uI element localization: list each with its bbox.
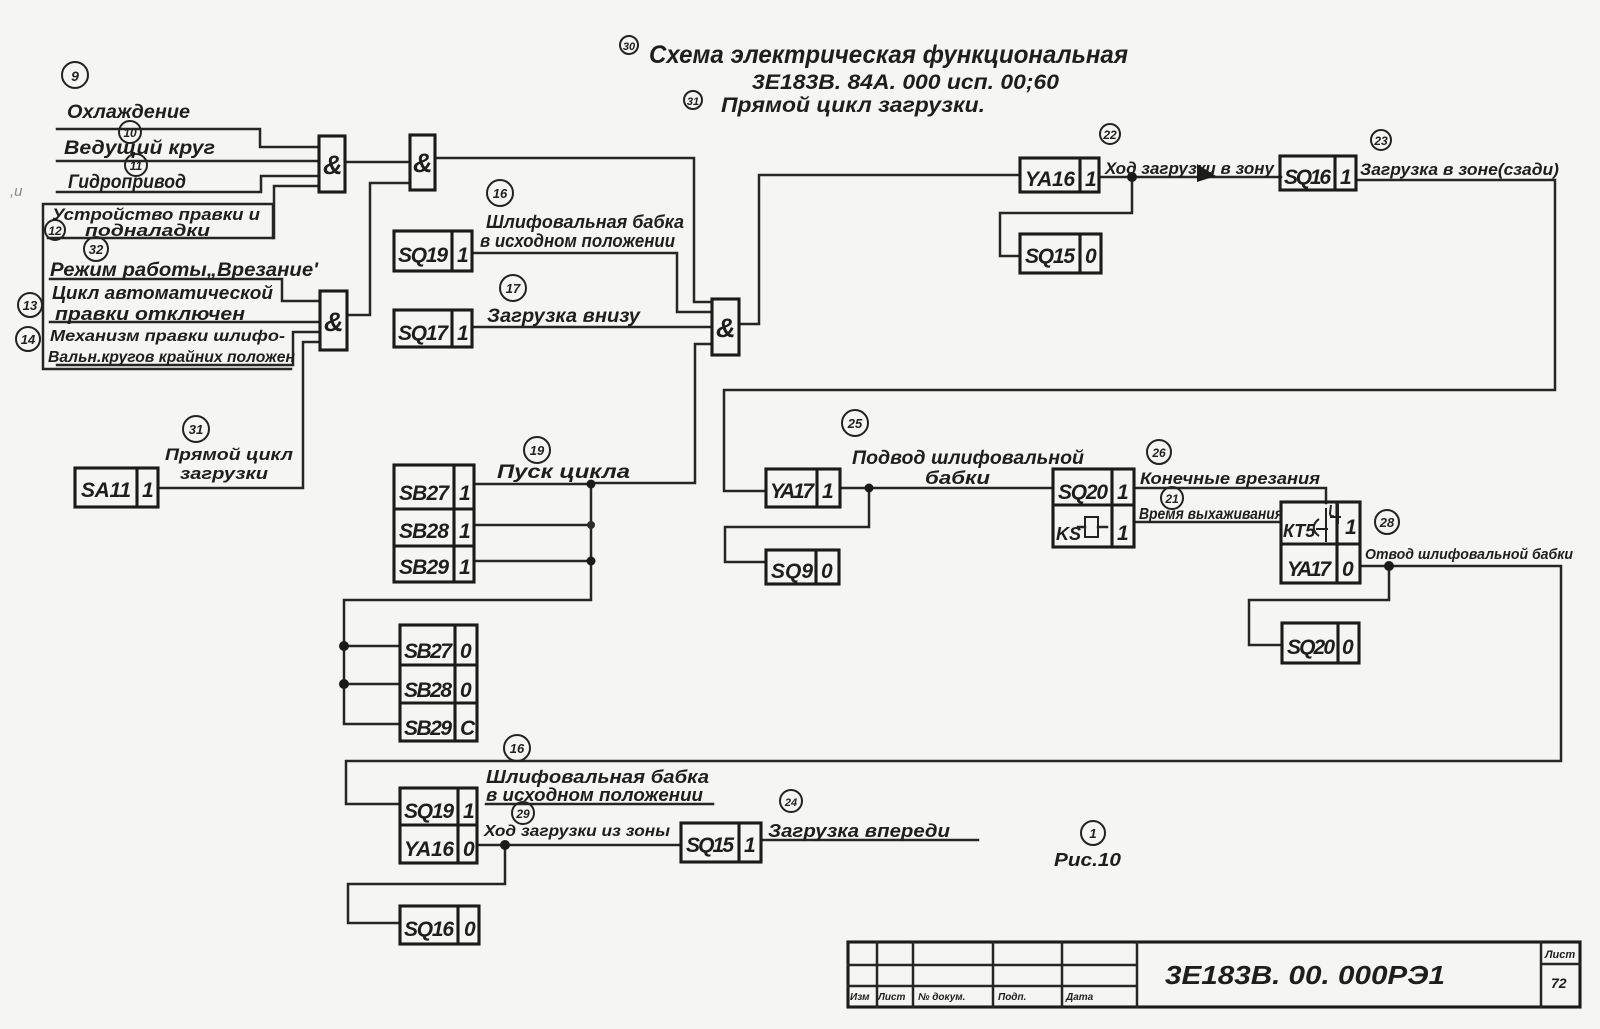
svg-text:Шлифовальная бабка: Шлифовальная бабка — [486, 767, 709, 787]
svg-text:14: 14 — [21, 332, 36, 347]
svg-text:3Е183В. 00. 000РЭ1: 3Е183В. 00. 000РЭ1 — [1165, 960, 1445, 990]
svg-text:32: 32 — [89, 242, 104, 257]
svg-text:Загрузка внизу: Загрузка внизу — [487, 306, 642, 327]
svg-text:1: 1 — [1117, 481, 1129, 504]
svg-text:16: 16 — [493, 186, 508, 201]
svg-text:SQ9: SQ9 — [771, 560, 813, 583]
svg-text:Лист: Лист — [877, 992, 906, 1003]
svg-text:1: 1 — [459, 520, 471, 543]
svg-text:3Е183В. 84А. 000 исп. 00;60: 3Е183В. 84А. 000 исп. 00;60 — [752, 71, 1059, 94]
svg-text:Ход загрузки в зону: Ход загрузки в зону — [1104, 159, 1276, 178]
svg-text:правки отключен: правки отключен — [55, 304, 245, 324]
svg-text:SQ19: SQ19 — [398, 244, 448, 267]
svg-text:Подвод шлифовальной: Подвод шлифовальной — [852, 448, 1084, 469]
svg-text:Механизм правки шлифо-: Механизм правки шлифо- — [50, 328, 285, 345]
svg-text:26: 26 — [1151, 446, 1166, 460]
svg-text:,и: ,и — [10, 183, 23, 200]
svg-text:Дата: Дата — [1065, 992, 1094, 1003]
svg-text:1: 1 — [463, 800, 475, 823]
svg-text:Прямой цикл загрузки.: Прямой цикл загрузки. — [721, 94, 985, 117]
svg-text:1: 1 — [1085, 168, 1097, 191]
svg-text:YA16: YA16 — [404, 838, 454, 861]
svg-text:11: 11 — [130, 159, 143, 173]
svg-text:SQ16: SQ16 — [404, 918, 454, 941]
svg-text:SQ16: SQ16 — [1284, 166, 1331, 189]
svg-text:1: 1 — [744, 834, 756, 857]
svg-text:Гидропривод: Гидропривод — [68, 172, 186, 193]
svg-text:КТ5: КТ5 — [1283, 521, 1316, 541]
svg-text:подналадки: подналадки — [85, 221, 211, 240]
svg-text:&: & — [413, 148, 433, 178]
svg-text:SB27: SB27 — [399, 482, 450, 505]
svg-text:24: 24 — [784, 797, 797, 809]
svg-text:Рис.10: Рис.10 — [1054, 850, 1121, 870]
svg-text:0: 0 — [463, 838, 475, 861]
svg-text:Шлифовальная бабка: Шлифовальная бабка — [486, 212, 684, 232]
svg-text:0: 0 — [1342, 558, 1354, 581]
svg-text:SQ17: SQ17 — [398, 322, 449, 345]
svg-text:SQ15: SQ15 — [686, 834, 734, 857]
svg-text:SB28: SB28 — [399, 520, 449, 543]
svg-text:30: 30 — [623, 41, 636, 53]
svg-text:Подп.: Подп. — [998, 992, 1026, 1003]
svg-text:Время выхаживания: Время выхаживания — [1139, 506, 1284, 523]
svg-text:0: 0 — [1085, 245, 1097, 268]
svg-text:9: 9 — [71, 68, 79, 84]
svg-text:&: & — [324, 307, 344, 337]
svg-text:&: & — [716, 313, 736, 343]
svg-text:SQ19: SQ19 — [404, 800, 454, 823]
svg-text:Схема электрическая функцион: Схема электрическая функциональная — [649, 41, 1128, 69]
svg-text:28: 28 — [1379, 515, 1395, 530]
svg-text:1: 1 — [1117, 522, 1129, 545]
svg-text:Ход загрузки из зоны: Ход загрузки из зоны — [483, 823, 670, 840]
svg-text:0: 0 — [464, 918, 476, 941]
svg-text:Ведущий круг: Ведущий круг — [64, 138, 215, 159]
svg-text:SQ20: SQ20 — [1287, 636, 1335, 659]
svg-text:Пуск цикла: Пуск цикла — [497, 462, 631, 483]
svg-text:1: 1 — [457, 322, 469, 345]
svg-text:Загрузка в зоне(сзади): Загрузка в зоне(сзади) — [1360, 160, 1559, 179]
svg-text:SQ15: SQ15 — [1025, 245, 1075, 268]
svg-text:SB29: SB29 — [404, 717, 452, 740]
svg-text:Вальн.кругов крайних положен: Вальн.кругов крайних положен — [48, 349, 295, 366]
svg-text:0: 0 — [1342, 636, 1354, 659]
svg-text:SQ20: SQ20 — [1058, 481, 1108, 504]
svg-text:0: 0 — [460, 640, 472, 663]
svg-text:17: 17 — [506, 281, 521, 296]
svg-text:1: 1 — [457, 244, 469, 267]
svg-text:1: 1 — [1340, 166, 1352, 189]
svg-text:YA17: YA17 — [1287, 558, 1332, 581]
svg-text:23: 23 — [1373, 134, 1388, 148]
svg-text:Прямой цикл: Прямой цикл — [165, 445, 293, 464]
svg-text:29: 29 — [515, 807, 530, 821]
svg-text:загрузки: загрузки — [180, 464, 269, 483]
svg-text:Охлаждение: Охлаждение — [67, 102, 190, 123]
svg-text:0: 0 — [821, 560, 833, 583]
svg-text:13: 13 — [23, 298, 38, 313]
svg-text:SB28: SB28 — [404, 679, 452, 702]
svg-text:SA11: SA11 — [81, 479, 131, 502]
svg-text:в исходном положении: в исходном положении — [480, 231, 675, 251]
svg-text:SB29: SB29 — [399, 556, 449, 579]
svg-text:16: 16 — [510, 741, 525, 756]
svg-text:1: 1 — [822, 480, 834, 503]
svg-text:1: 1 — [459, 556, 471, 579]
svg-text:31: 31 — [189, 422, 203, 437]
svg-text:31: 31 — [687, 96, 699, 108]
svg-text:Изм: Изм — [850, 992, 870, 1003]
svg-text:№ докум.: № докум. — [918, 992, 965, 1003]
svg-text:Цикл автоматической: Цикл автоматической — [52, 283, 273, 303]
svg-text:SB27: SB27 — [404, 640, 453, 663]
svg-text:22: 22 — [1102, 128, 1117, 142]
svg-text:C: C — [460, 717, 476, 740]
svg-text:1: 1 — [459, 482, 471, 505]
svg-text:21: 21 — [1164, 492, 1179, 506]
svg-text:бабки: бабки — [925, 468, 990, 488]
svg-text:Лист: Лист — [1544, 949, 1575, 961]
svg-text:&: & — [323, 150, 343, 180]
svg-text:25: 25 — [847, 416, 863, 431]
svg-text:Режим работы„Врезание': Режим работы„Врезание' — [50, 260, 320, 281]
svg-text:Конечные врезания: Конечные врезания — [1140, 469, 1320, 488]
svg-text:1: 1 — [1089, 826, 1096, 841]
svg-text:Загрузка впереди: Загрузка впереди — [768, 821, 950, 841]
svg-text:в исходном положении: в исходном положении — [486, 785, 703, 805]
svg-text:Отвод шлифовальной бабки: Отвод шлифовальной бабки — [1365, 546, 1573, 563]
svg-text:YA17: YA17 — [770, 480, 815, 503]
svg-text:1: 1 — [142, 479, 154, 502]
svg-text:19: 19 — [530, 443, 545, 458]
svg-text:0: 0 — [460, 679, 472, 702]
svg-text:YA16: YA16 — [1025, 168, 1075, 191]
svg-text:72: 72 — [1551, 975, 1567, 991]
svg-text:12: 12 — [48, 224, 62, 238]
svg-text:1: 1 — [1345, 516, 1357, 539]
